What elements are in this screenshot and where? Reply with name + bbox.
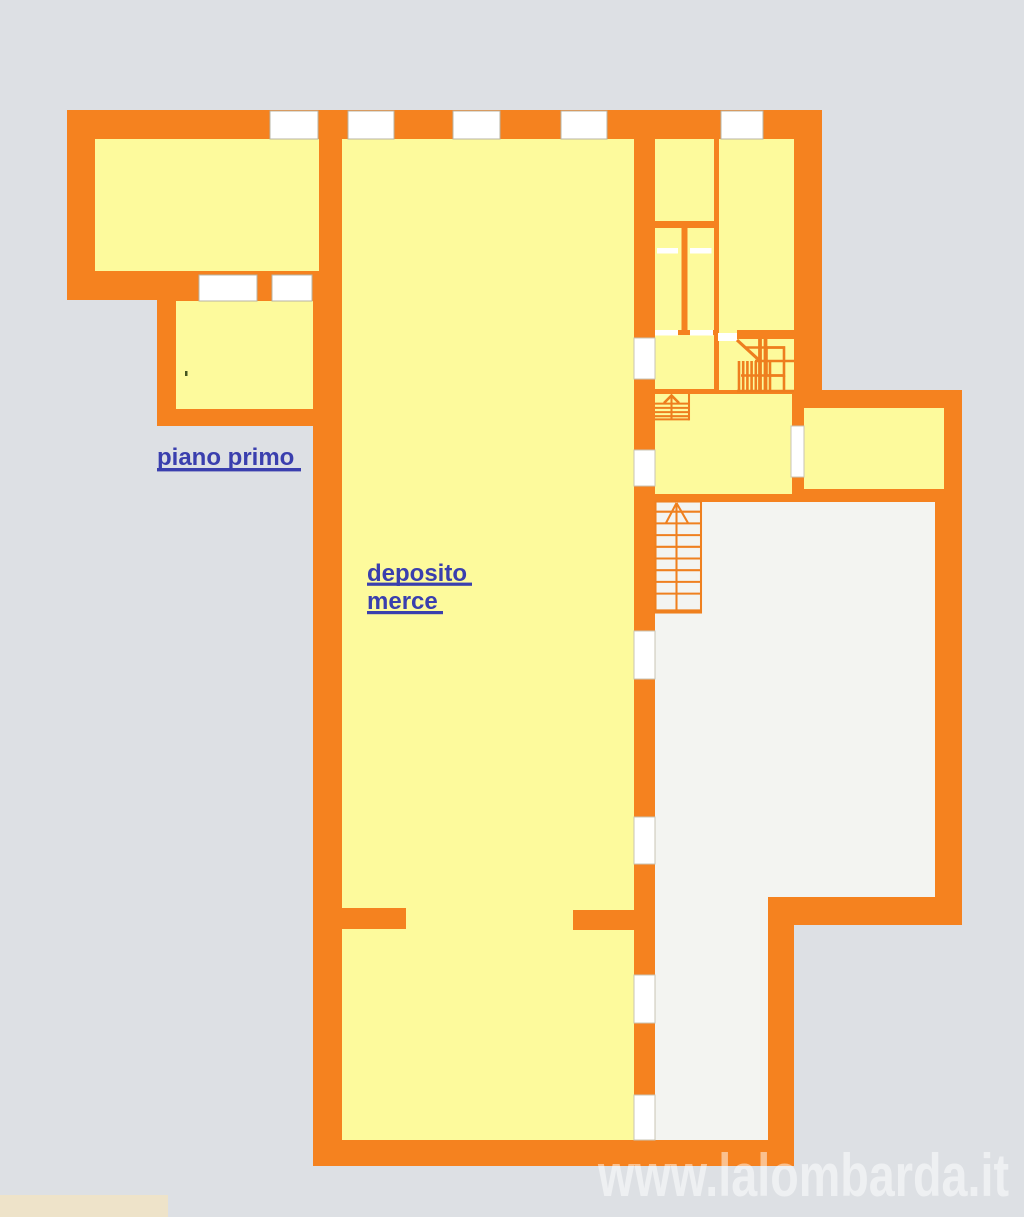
svg-text:www.lalombarda.it: www.lalombarda.it: [597, 1142, 1009, 1209]
svg-text:piano primo: piano primo: [157, 444, 294, 471]
svg-text:merce: merce: [367, 588, 438, 615]
